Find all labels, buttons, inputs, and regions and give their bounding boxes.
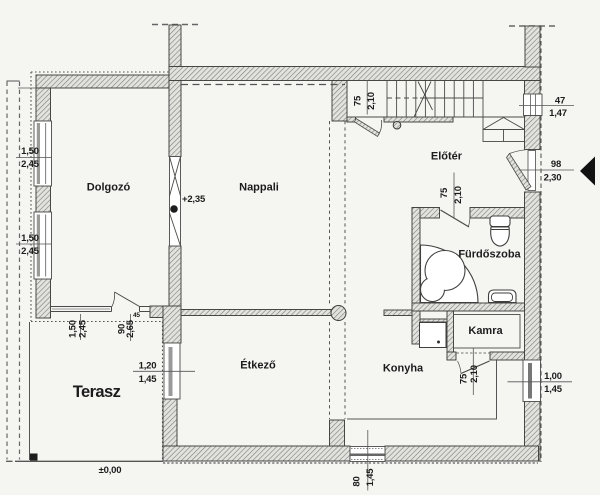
svg-text:Étkező: Étkező <box>240 359 276 372</box>
svg-text:Dolgozó: Dolgozó <box>87 182 131 194</box>
svg-text:47: 47 <box>555 96 565 107</box>
svg-text:1,50: 1,50 <box>21 233 39 244</box>
svg-text:2,30: 2,30 <box>544 173 562 184</box>
svg-text:98: 98 <box>551 159 561 170</box>
svg-text:2,45: 2,45 <box>21 246 40 257</box>
svg-text:75: 75 <box>439 187 450 198</box>
svg-text:±0,00: ±0,00 <box>99 465 122 476</box>
svg-text:2,10: 2,10 <box>469 365 480 383</box>
svg-text:2,10: 2,10 <box>366 92 377 110</box>
svg-text:1,20: 1,20 <box>139 361 157 372</box>
svg-text:75: 75 <box>353 95 364 106</box>
svg-text:1,45: 1,45 <box>544 384 563 395</box>
svg-text:2,45: 2,45 <box>78 319 89 338</box>
svg-text:2,45: 2,45 <box>21 159 40 170</box>
svg-text:80: 80 <box>352 476 363 486</box>
svg-text:Előtér: Előtér <box>431 151 463 163</box>
svg-text:Kamra: Kamra <box>468 325 503 337</box>
svg-text:2,65: 2,65 <box>125 319 136 338</box>
svg-text:1,47: 1,47 <box>549 108 567 119</box>
svg-text:Nappali: Nappali <box>239 182 279 194</box>
svg-text:1,45: 1,45 <box>139 374 158 385</box>
svg-text:Konyha: Konyha <box>383 363 424 375</box>
svg-text:1,50: 1,50 <box>21 146 39 157</box>
svg-text:Terasz: Terasz <box>73 383 121 401</box>
svg-text:1,45: 1,45 <box>365 468 376 487</box>
svg-text:2,10: 2,10 <box>453 186 464 204</box>
svg-text:Fürdőszoba: Fürdőszoba <box>458 249 521 261</box>
svg-text:45: 45 <box>133 312 140 319</box>
svg-text:+2,35: +2,35 <box>182 194 206 205</box>
svg-text:1,00: 1,00 <box>544 371 562 382</box>
svg-text:75: 75 <box>459 373 470 384</box>
